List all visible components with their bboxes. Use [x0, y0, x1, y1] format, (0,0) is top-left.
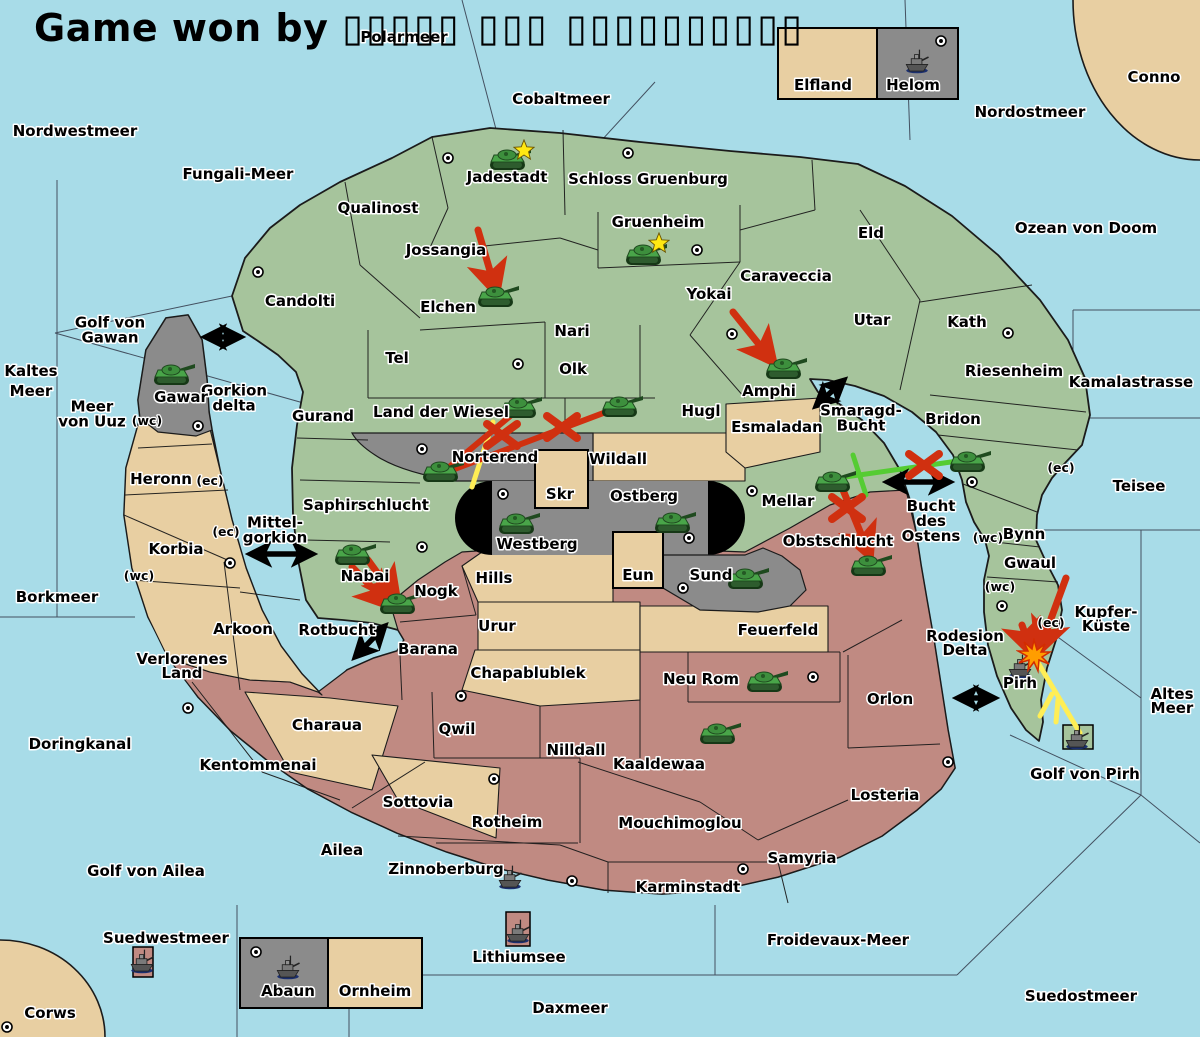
- sea-label-nordostmeer: Nordostmeer: [975, 103, 1086, 121]
- game-title: Game won by ▯▯▯▯▯ ▯▯▯ ▯▯▯▯▯▯▯▯▯▯: [34, 6, 805, 50]
- territory-label-rotheim[interactable]: Rotheim: [472, 813, 543, 831]
- city-dot-icon: [2, 1022, 12, 1032]
- city-dot-icon: [251, 947, 261, 957]
- channel-marker-label--ec-: (ec): [1047, 460, 1074, 475]
- territory-label-mellar[interactable]: Mellar: [762, 492, 816, 510]
- territory-label-schloss-gruenburg[interactable]: Schloss Gruenburg: [568, 170, 728, 188]
- city-dot-icon: [692, 245, 702, 255]
- city-dot-icon: [738, 864, 748, 874]
- sea-label-suedwestmeer: Suedwestmeer: [103, 929, 229, 947]
- territory-label-charaua[interactable]: Charaua: [292, 716, 362, 734]
- territory-label-esmaladan[interactable]: Esmaladan: [731, 418, 823, 436]
- channel-marker-label--wc-: (wc): [973, 530, 1003, 545]
- territory-label-hugl[interactable]: Hugl: [681, 402, 720, 420]
- territory-label-arkoon[interactable]: Arkoon: [213, 620, 273, 638]
- territory-label-ostberg[interactable]: Ostberg: [610, 487, 678, 505]
- map-canvas[interactable]: PolarmeerCobaltmeerNordwestmeerNordostme…: [0, 0, 1200, 1037]
- city-dot-icon: [678, 583, 688, 593]
- territory-label-sund[interactable]: Sund: [690, 566, 733, 584]
- territory-label-gruenheim[interactable]: Gruenheim: [612, 213, 705, 231]
- channel-marker-label--wc-: (wc): [132, 413, 162, 428]
- channel-marker-label--wc-: (wc): [124, 568, 154, 583]
- city-dot-icon: [1003, 328, 1013, 338]
- territory-label-bynn[interactable]: Bynn: [1003, 525, 1046, 543]
- city-dot-icon: [456, 691, 466, 701]
- sea-label-froidevaux-meer: Froidevaux-Meer: [767, 931, 910, 949]
- territory-label-nilldall[interactable]: Nilldall: [546, 741, 605, 759]
- territory-label-zinnoberburg[interactable]: Zinnoberburg: [388, 860, 504, 878]
- city-dot-icon: [193, 421, 203, 431]
- territory-label-urur[interactable]: Urur: [478, 617, 516, 635]
- territory-label-eld[interactable]: Eld: [858, 224, 884, 242]
- territory-label-barana[interactable]: Barana: [398, 640, 458, 658]
- territory-label-eun[interactable]: Eun: [622, 566, 654, 584]
- channel-marker-label--ec-: (ec): [196, 473, 223, 488]
- territory-label-ailea[interactable]: Ailea: [321, 841, 363, 859]
- territory-label-corws[interactable]: Corws: [24, 1004, 76, 1022]
- territory-label-orlon[interactable]: Orlon: [867, 690, 913, 708]
- city-dot-icon: [183, 703, 193, 713]
- territory-label-jadestadt[interactable]: Jadestadt: [466, 168, 548, 186]
- sea-label-nordwestmeer: Nordwestmeer: [13, 122, 138, 140]
- territory-label-mouchimoglou[interactable]: Mouchimoglou: [618, 814, 741, 832]
- sea-label-ozean-von-doom: Ozean von Doom: [1015, 219, 1157, 237]
- sea-label-suedostmeer: Suedostmeer: [1025, 987, 1138, 1005]
- sea-label-kamalastrasse: Kamalastrasse: [1069, 373, 1193, 391]
- city-dot-icon: [513, 359, 523, 369]
- territory-label-gawar[interactable]: Gawar: [154, 388, 208, 406]
- territory-label-pirh[interactable]: Pirh: [1003, 674, 1037, 692]
- territory-label-hills[interactable]: Hills: [476, 569, 513, 587]
- channel-marker-label--ec-: (ec): [1037, 615, 1064, 630]
- city-dot-icon: [498, 489, 508, 499]
- territory-label-ornheim[interactable]: Ornheim: [339, 982, 411, 1000]
- territory-label-karminstadt[interactable]: Karminstadt: [636, 878, 741, 896]
- territory-label-nabai[interactable]: Nabai: [341, 567, 390, 585]
- city-dot-icon: [225, 558, 235, 568]
- territory-label-gurand[interactable]: Gurand: [292, 407, 354, 425]
- sea-label-golf-von-pirh: Golf von Pirh: [1030, 765, 1140, 783]
- territory-label-neu-rom[interactable]: Neu Rom: [663, 670, 739, 688]
- game-title-text: Game won by: [34, 6, 342, 50]
- city-dot-icon: [936, 36, 946, 46]
- sea-label-fungali-meer: Fungali-Meer: [183, 165, 294, 183]
- channel-marker-label--ec-: (ec): [212, 524, 239, 539]
- territory-label-qwil[interactable]: Qwil: [439, 720, 476, 738]
- territory-label-sottovia[interactable]: Sottovia: [383, 793, 454, 811]
- channel-marker-label--wc-: (wc): [985, 579, 1015, 594]
- territory-label-nari[interactable]: Nari: [554, 322, 589, 340]
- sea-label-cobaltmeer: Cobaltmeer: [512, 90, 610, 108]
- sea-label-daxmeer: Daxmeer: [532, 999, 608, 1017]
- city-dot-icon: [684, 533, 694, 543]
- sea-label-rotbucht: Rotbucht: [298, 621, 375, 639]
- territory-label-helom[interactable]: Helom: [886, 76, 940, 94]
- city-dot-icon: [417, 542, 427, 552]
- territory-label-feuerfeld[interactable]: Feuerfeld: [738, 621, 819, 639]
- territory-label-kentommenai[interactable]: Kentommenai: [199, 756, 316, 774]
- territory-label-abaun[interactable]: Abaun: [261, 982, 315, 1000]
- territory-label-amphi[interactable]: Amphi: [742, 382, 796, 400]
- territory-label-samyria[interactable]: Samyria: [768, 849, 837, 867]
- sea-label-mittel-gorkion: Mittel-gorkion: [243, 514, 308, 547]
- territory-label-heronn[interactable]: Heronn: [130, 470, 192, 488]
- city-dot-icon: [623, 148, 633, 158]
- city-dot-icon: [489, 774, 499, 784]
- sea-label-golf-von-ailea: Golf von Ailea: [87, 862, 205, 880]
- winner-name-boxes: ▯▯▯▯▯ ▯▯▯ ▯▯▯▯▯▯▯▯▯▯: [342, 6, 805, 50]
- territory-label-olk[interactable]: Olk: [559, 360, 588, 378]
- game-map: PolarmeerCobaltmeerNordwestmeerNordostme…: [0, 0, 1200, 1037]
- territory-label-yokai[interactable]: Yokai: [685, 285, 731, 303]
- sea-label-kupfer-küste: Kupfer-Küste: [1074, 603, 1137, 635]
- territory-label-obstschlucht[interactable]: Obstschlucht: [783, 532, 894, 550]
- territory-label-tel[interactable]: Tel: [385, 349, 409, 367]
- territory-label-land-der-wiesel[interactable]: Land der Wiesel: [373, 403, 509, 421]
- sea-label-lithiumsee: Lithiumsee: [472, 948, 565, 966]
- territory-label-wildall[interactable]: Wildall: [589, 450, 647, 468]
- territory-label-utar[interactable]: Utar: [854, 311, 891, 329]
- sea-label-doringkanal: Doringkanal: [29, 735, 132, 753]
- sea-label-borkmeer: Borkmeer: [16, 588, 99, 606]
- territory-label-elchen[interactable]: Elchen: [420, 298, 476, 316]
- city-dot-icon: [567, 876, 577, 886]
- city-dot-icon: [417, 444, 427, 454]
- territory-label-skr[interactable]: Skr: [546, 485, 575, 503]
- city-dot-icon: [997, 601, 1007, 611]
- sea-label-altes-meer: AltesMeer: [1150, 685, 1193, 717]
- territory-label-caraveccia[interactable]: Caraveccia: [740, 267, 832, 285]
- territory-label-norterend[interactable]: Norterend: [452, 448, 539, 466]
- territory-label-kath[interactable]: Kath: [947, 313, 987, 331]
- territory-label-nogk[interactable]: Nogk: [414, 582, 459, 600]
- territory-label-saphirschlucht[interactable]: Saphirschlucht: [303, 496, 429, 514]
- territory-label-jossangia[interactable]: Jossangia: [405, 241, 487, 259]
- city-dot-icon: [727, 329, 737, 339]
- territory-label-losteria[interactable]: Losteria: [851, 786, 920, 804]
- city-dot-icon: [443, 153, 453, 163]
- sea-label-golf-von-gawan: Golf vonGawan: [75, 314, 145, 347]
- sea-label-teisee: Teisee: [1113, 477, 1166, 495]
- territory-label-candolti[interactable]: Candolti: [265, 292, 335, 310]
- territory-label-conno[interactable]: Conno: [1128, 68, 1181, 86]
- territory-label-elfland[interactable]: Elfland: [794, 76, 852, 94]
- support-line-yellow: [1056, 700, 1058, 722]
- city-dot-icon: [943, 757, 953, 767]
- city-dot-icon: [808, 672, 818, 682]
- territory-label-chapablublek[interactable]: Chapablublek: [470, 664, 586, 682]
- city-dot-icon: [967, 477, 977, 487]
- city-dot-icon: [253, 267, 263, 277]
- territory-label-westberg[interactable]: Westberg: [496, 535, 577, 553]
- territory-label-riesenheim[interactable]: Riesenheim: [965, 362, 1063, 380]
- territory-label-gwaul[interactable]: Gwaul: [1004, 554, 1056, 572]
- territory-label-kaaldewaa[interactable]: Kaaldewaa: [613, 755, 705, 773]
- territory-label-bridon[interactable]: Bridon: [925, 410, 981, 428]
- territory-label-qualinost[interactable]: Qualinost: [338, 199, 419, 217]
- city-dot-icon: [747, 486, 757, 496]
- territory-label-korbia[interactable]: Korbia: [148, 540, 203, 558]
